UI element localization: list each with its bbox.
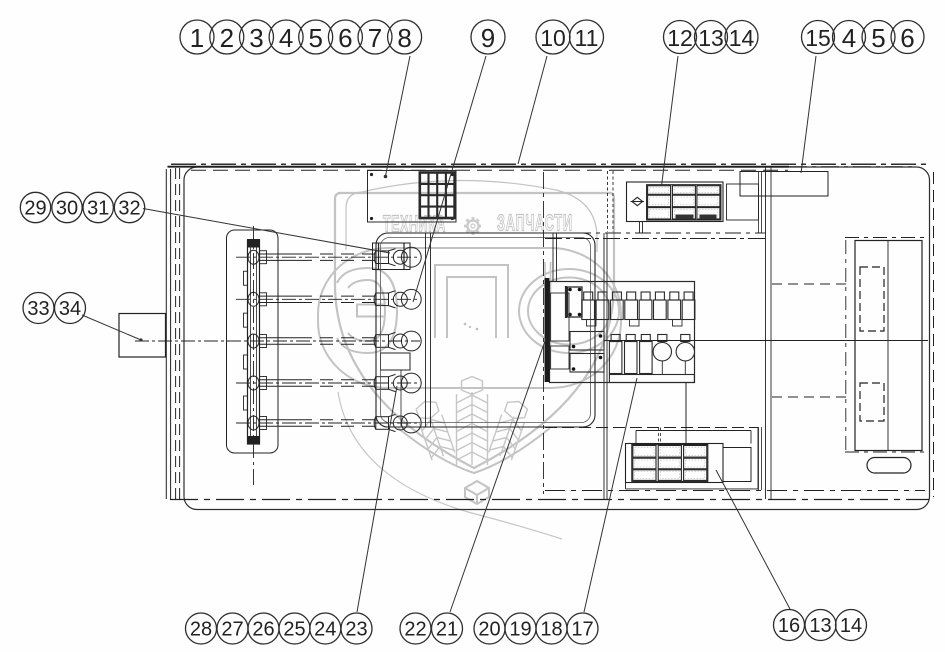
svg-text:4: 4	[842, 23, 856, 53]
svg-text:23: 23	[345, 618, 367, 640]
svg-text:16: 16	[778, 615, 800, 637]
svg-text:14: 14	[729, 25, 755, 51]
svg-text:4: 4	[279, 23, 293, 53]
svg-text:ЗАПЧАСТИ: ЗАПЧАСТИ	[497, 209, 573, 235]
svg-text:6: 6	[900, 23, 914, 53]
svg-text:33: 33	[27, 298, 49, 320]
svg-text:26: 26	[252, 618, 274, 640]
svg-text:18: 18	[540, 618, 562, 640]
svg-text:31: 31	[87, 197, 109, 219]
svg-text:25: 25	[283, 618, 305, 640]
svg-text:13: 13	[809, 615, 831, 637]
svg-text:2: 2	[220, 23, 234, 53]
svg-text:29: 29	[24, 197, 46, 219]
svg-text:27: 27	[221, 618, 243, 640]
svg-text:12: 12	[667, 25, 693, 51]
svg-text:21: 21	[436, 618, 458, 640]
svg-text:6: 6	[338, 23, 352, 53]
svg-text:8: 8	[397, 23, 411, 53]
svg-text:28: 28	[190, 618, 212, 640]
svg-text:19: 19	[509, 618, 531, 640]
svg-text:20: 20	[478, 618, 500, 640]
svg-text:11: 11	[575, 25, 599, 51]
svg-text:13: 13	[698, 25, 724, 51]
svg-text:34: 34	[59, 298, 81, 320]
svg-text:5: 5	[871, 23, 885, 53]
svg-text:14: 14	[840, 615, 862, 637]
svg-text:15: 15	[805, 25, 831, 51]
svg-text:32: 32	[118, 197, 140, 219]
svg-text:9: 9	[481, 23, 495, 53]
svg-text:3: 3	[249, 23, 263, 53]
svg-text:17: 17	[571, 618, 593, 640]
svg-text:10: 10	[540, 25, 566, 51]
svg-text:5: 5	[308, 23, 322, 53]
svg-text:24: 24	[314, 618, 336, 640]
svg-text:7: 7	[368, 23, 382, 53]
svg-text:30: 30	[56, 197, 78, 219]
svg-text:22: 22	[404, 618, 426, 640]
svg-text:1: 1	[190, 23, 204, 53]
